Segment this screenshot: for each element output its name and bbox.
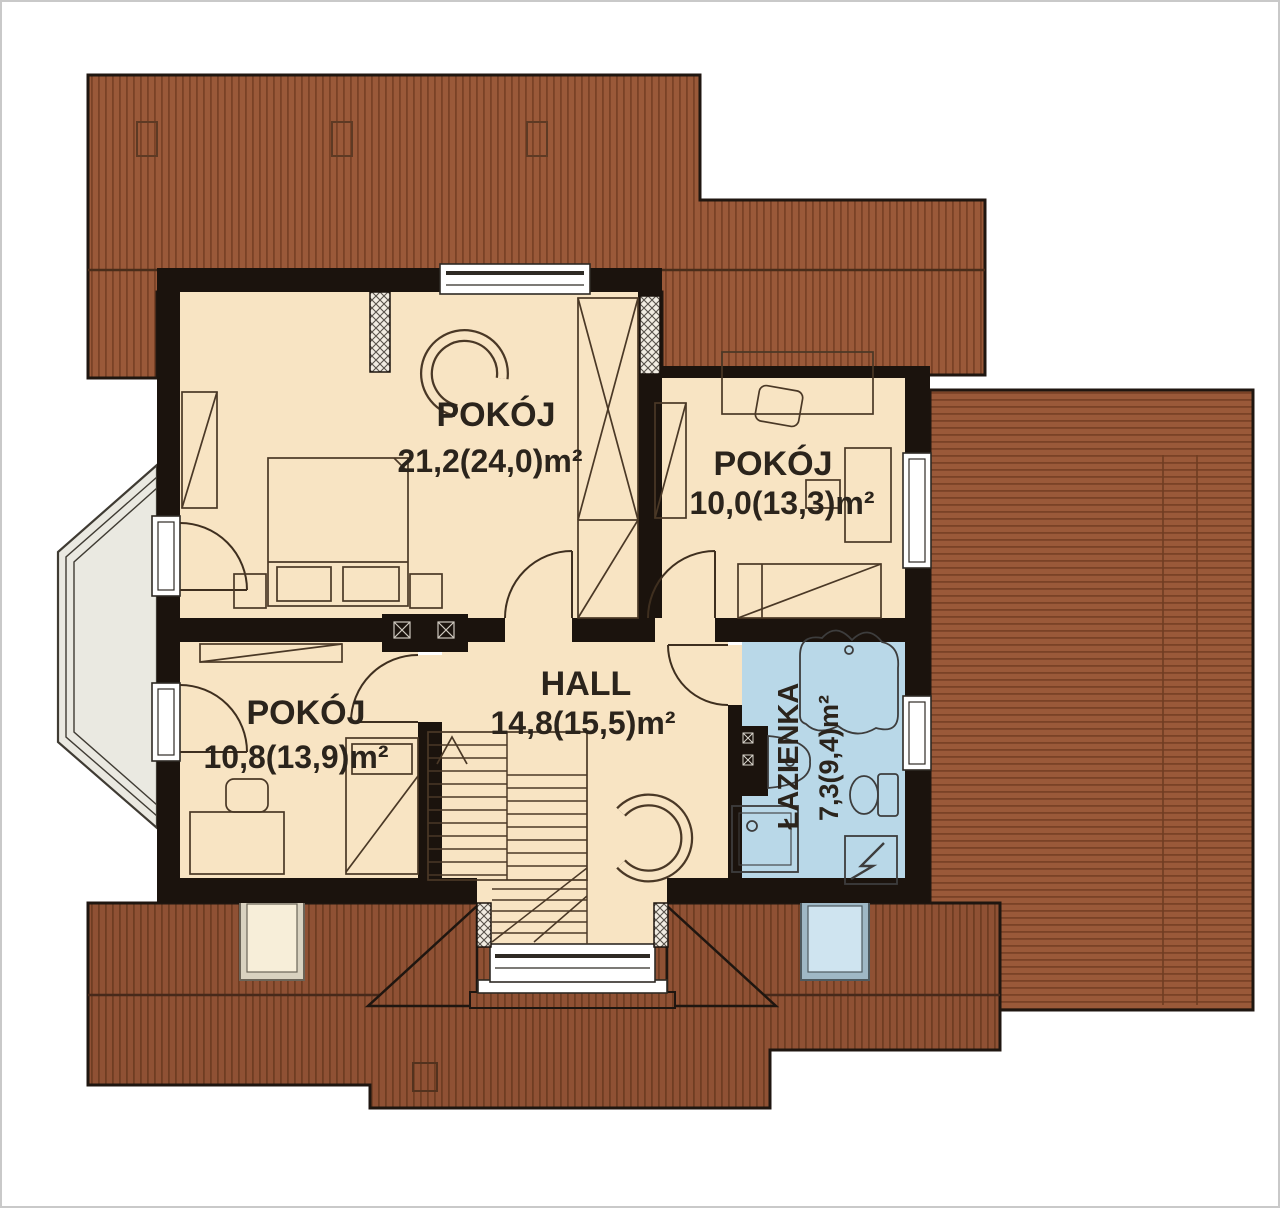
room-area: 7,3(9,4)m² [814,695,844,821]
window-top [440,264,590,294]
room-area: 10,0(13,3)m² [690,485,875,521]
vanity-counter [740,726,768,796]
dormer-jamb [654,903,668,947]
skylight-window [240,896,304,980]
bed [738,564,881,618]
room-name: POKÓJ [246,694,365,732]
door-threshold [418,655,442,722]
room-area: 21,2(24,0)m² [398,443,583,479]
balcony-door-left-lower [152,683,180,761]
skylight-window-blue [801,898,869,980]
room-name: POKÓJ [713,445,832,483]
balcony-door-left-upper [152,516,180,596]
door-threshold [505,618,572,642]
dormer-front-roof [470,992,675,1008]
hatched-pillar [640,296,660,374]
room-area: 14,8(15,5)m² [491,705,676,741]
dormer-jamb [477,903,491,947]
window-right-upper [903,453,931,568]
room-name: HALL [541,665,632,703]
floor-plan-drawing: POKÓJ 21,2(24,0)m² POKÓJ 10,0(13,3)m² PO… [0,0,1280,1208]
window-right-bathroom [903,696,931,770]
room-name: ŁAZIENKA [773,683,805,830]
door-threshold [655,618,715,642]
room-area: 10,8(13,9)m² [204,739,389,775]
chimney [382,614,468,652]
dormer-window [490,944,655,982]
floor-plan-page: POKÓJ 21,2(24,0)m² POKÓJ 10,0(13,3)m² PO… [0,0,1280,1208]
door-threshold [728,645,742,705]
hatched-pillar [370,292,390,372]
double-bed [268,458,408,606]
room-name: POKÓJ [436,396,555,434]
dormer-nook-floor [477,878,667,946]
